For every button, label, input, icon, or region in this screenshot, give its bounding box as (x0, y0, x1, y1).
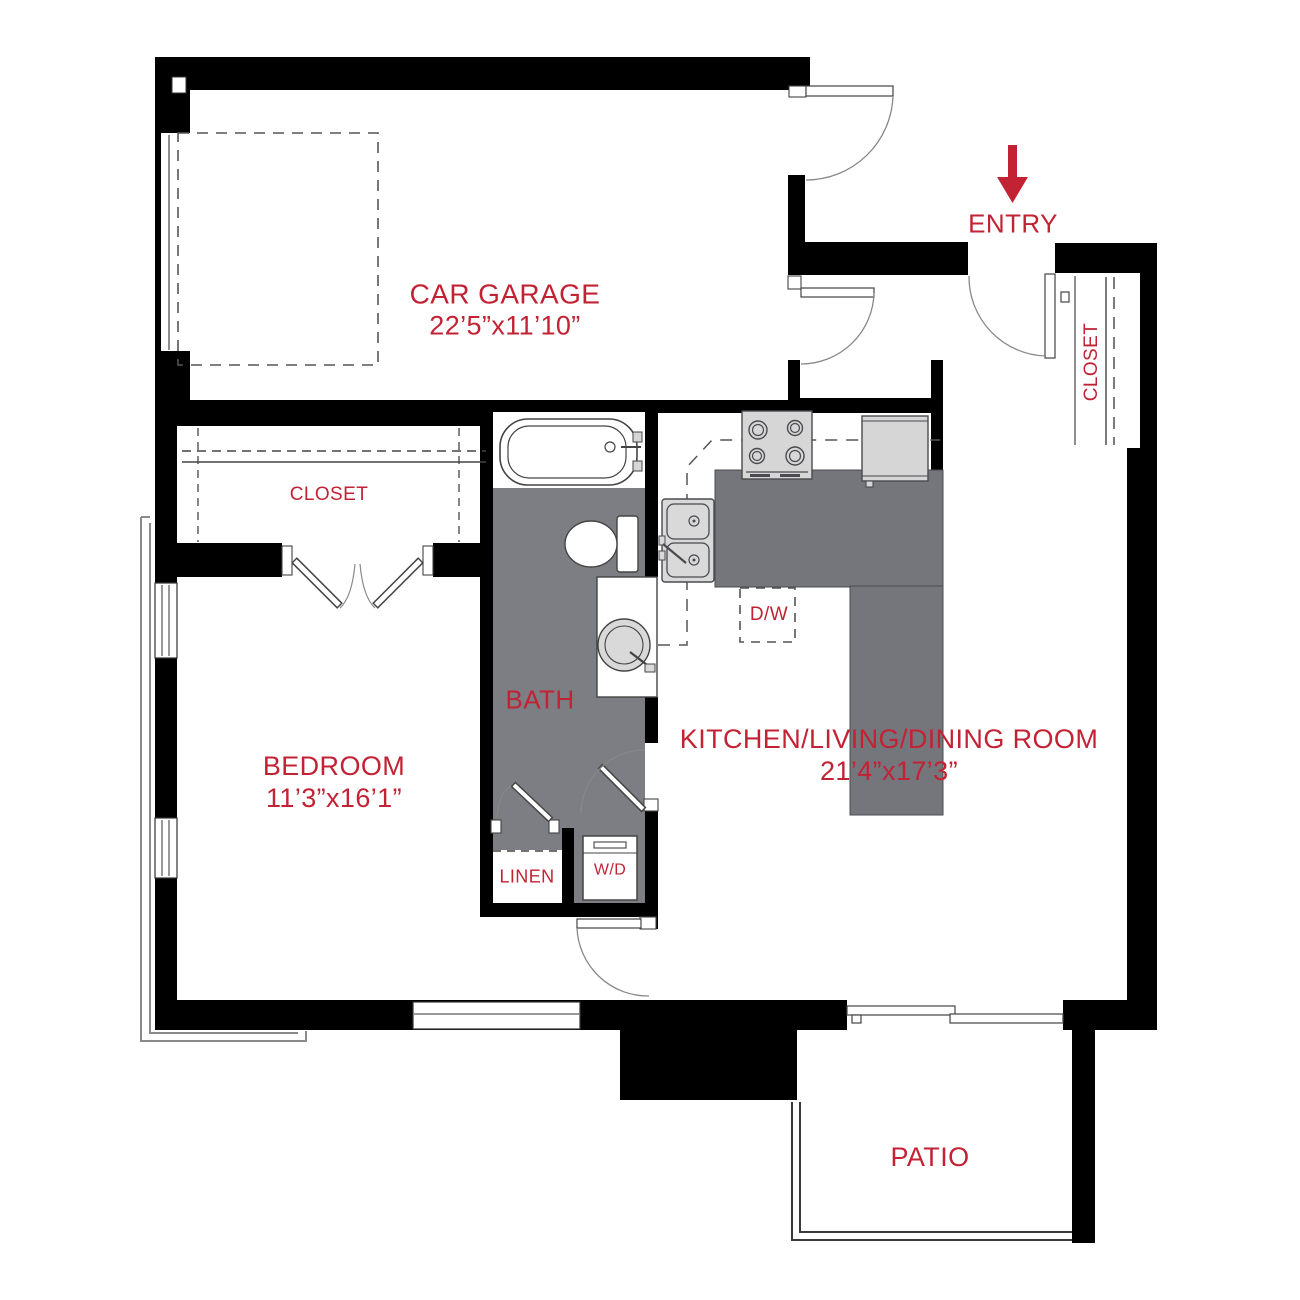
label-bedroom: BEDROOM 11’3”x16’1” (263, 751, 405, 815)
bedroom-door (577, 917, 656, 996)
room-name: BEDROOM (263, 751, 405, 783)
entry-door (969, 274, 1055, 358)
garage-vestibule-door (788, 276, 874, 364)
label-entry: ENTRY (968, 209, 1058, 240)
label-entry-closet: CLOSET (1081, 323, 1103, 401)
garage-overhead-door-outline (169, 133, 378, 365)
toilet (565, 516, 638, 572)
bedroom-window-left-2 (155, 818, 177, 878)
garage-side-door (789, 86, 893, 180)
room-name: ENTRY (968, 209, 1058, 240)
kitchen-sink (659, 499, 714, 582)
floor-plan-drawing (0, 0, 1300, 1300)
room-name: D/W (750, 604, 788, 626)
room-dims: 11’3”x16’1” (263, 783, 405, 815)
label-patio: PATIO (890, 1142, 969, 1174)
label-bath: BATH (505, 685, 574, 716)
sliding-door-handle (852, 1015, 861, 1023)
floor-plan: CAR GARAGE 22’5”x11’10” ENTRY CLOSET CLO… (0, 0, 1300, 1300)
room-name: KITCHEN/LIVING/DINING ROOM (680, 724, 1098, 756)
bedroom-window-left-1 (155, 583, 177, 658)
refrigerator (862, 416, 928, 487)
room-name: BATH (505, 685, 574, 716)
room-name: CLOSET (290, 484, 368, 506)
garage-corner-notch (172, 77, 186, 93)
bedroom-closet-doors (282, 546, 433, 608)
room-dims: 21’4”x17’3” (680, 756, 1098, 788)
room-name: CLOSET (1081, 323, 1103, 401)
label-kitchen-living-dining: KITCHEN/LIVING/DINING ROOM 21’4”x17’3” (680, 724, 1098, 788)
room-dims: 22’5”x11’10” (410, 311, 601, 343)
entry-arrow-icon (997, 145, 1028, 203)
stove (742, 411, 812, 479)
room-name: LINEN (499, 866, 554, 887)
label-bedroom-closet: CLOSET (290, 484, 368, 506)
label-car-garage: CAR GARAGE 22’5”x11’10” (410, 278, 601, 343)
sliding-door (847, 1006, 1063, 1023)
linen-wd-divider-wall (562, 828, 574, 903)
label-linen: LINEN (499, 866, 554, 887)
room-name: CAR GARAGE (410, 278, 601, 311)
vanity-sink (597, 577, 657, 697)
room-name: W/D (594, 862, 626, 881)
label-washer-dryer: W/D (594, 862, 626, 881)
bedroom-window-bottom (413, 1002, 580, 1029)
room-name: PATIO (890, 1142, 969, 1174)
bathtub (500, 419, 642, 485)
label-dishwasher: D/W (750, 604, 788, 626)
